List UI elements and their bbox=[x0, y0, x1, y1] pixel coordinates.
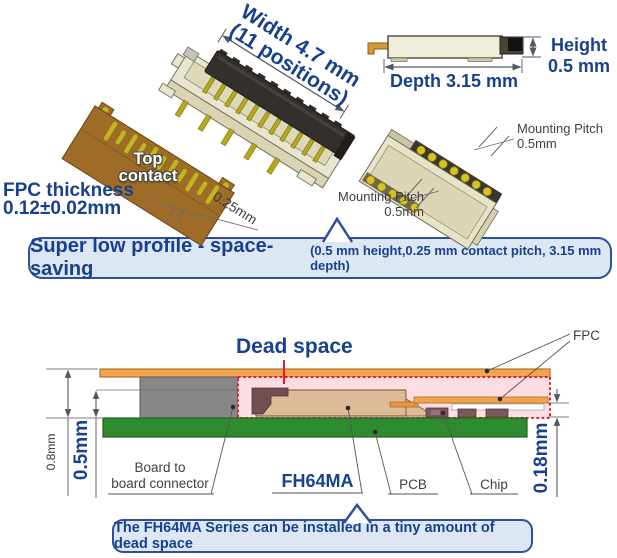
leader-dots bbox=[231, 369, 503, 435]
feature-banner-main: Super low profile - space-saving bbox=[30, 235, 305, 281]
connector-3d-view: Width 4.7 mm (11 positions) bbox=[150, 0, 387, 202]
fpc-label: FPC bbox=[573, 328, 600, 343]
top-contact-label: Top contact bbox=[112, 151, 184, 185]
mounting-pitch-bottom-label: Mounting Pitch 0.5mm bbox=[330, 190, 424, 219]
stiffener-strip bbox=[452, 404, 544, 410]
dead-space-region bbox=[238, 377, 550, 418]
bottom-banner-text: The FH64MA Series can be installed in a … bbox=[114, 520, 531, 552]
width-dimension: Width 4.7 mm (11 positions) bbox=[218, 0, 368, 118]
series-name-label: FH64MA bbox=[272, 471, 363, 492]
pcb-bar bbox=[103, 418, 527, 437]
contact-pins bbox=[202, 77, 325, 162]
mounting-contacts-top bbox=[415, 144, 493, 197]
feature-banner: Super low profile - space-saving (0.5 mm… bbox=[28, 237, 612, 279]
fpc-thickness-line2: 0.12±0.02mm bbox=[3, 200, 134, 218]
feature-banner-detail: (0.5 mm height,0.25 mm contact pitch, 3.… bbox=[310, 243, 610, 273]
bottom-banner: The FH64MA Series can be installed in a … bbox=[112, 519, 533, 553]
board-to-board-label: Board to board connector bbox=[106, 460, 214, 492]
width-label-line1: Width 4.7 mm bbox=[237, 0, 365, 92]
chip-1 bbox=[426, 408, 448, 417]
fh64ma-actuator bbox=[252, 388, 288, 414]
dim-08mm-label: 0.8mm bbox=[44, 423, 58, 481]
height-dimension bbox=[522, 37, 541, 57]
width-label-line2: (11 positions) bbox=[225, 19, 352, 110]
front-solder-tails bbox=[175, 100, 280, 174]
depth-label: Depth 3.15 mm bbox=[385, 71, 523, 92]
top-fpc-bar bbox=[100, 369, 550, 377]
contact-pitch-label: 0.25mm bbox=[210, 189, 259, 228]
pcb-label: PCB bbox=[388, 477, 438, 492]
connector-side-view bbox=[368, 36, 541, 73]
actuator-bar bbox=[203, 48, 358, 161]
dead-space-border bbox=[238, 377, 550, 418]
mounting-pitch-top-label: Mounting Pitch 0.5mm bbox=[517, 122, 603, 151]
b2b-connector-block bbox=[140, 377, 238, 418]
height-label: Height 0.5 mm bbox=[544, 35, 614, 77]
chip-3 bbox=[486, 409, 508, 417]
lower-fpc-step bbox=[390, 402, 418, 407]
lower-fpc-bar bbox=[414, 397, 548, 403]
chip-2 bbox=[458, 409, 476, 417]
fpc-thickness-label: FPC thickness 0.12±0.02mm bbox=[3, 182, 134, 218]
fh64ma-body bbox=[256, 390, 406, 416]
dim-018mm-label: 0.18mm bbox=[531, 422, 551, 494]
dead-space-label: Dead space bbox=[236, 335, 353, 359]
chip-label: Chip bbox=[470, 477, 518, 492]
contact-pitch-dimension: 0.25mm bbox=[148, 189, 260, 230]
dim-05mm-label: 0.5mm bbox=[71, 419, 91, 481]
